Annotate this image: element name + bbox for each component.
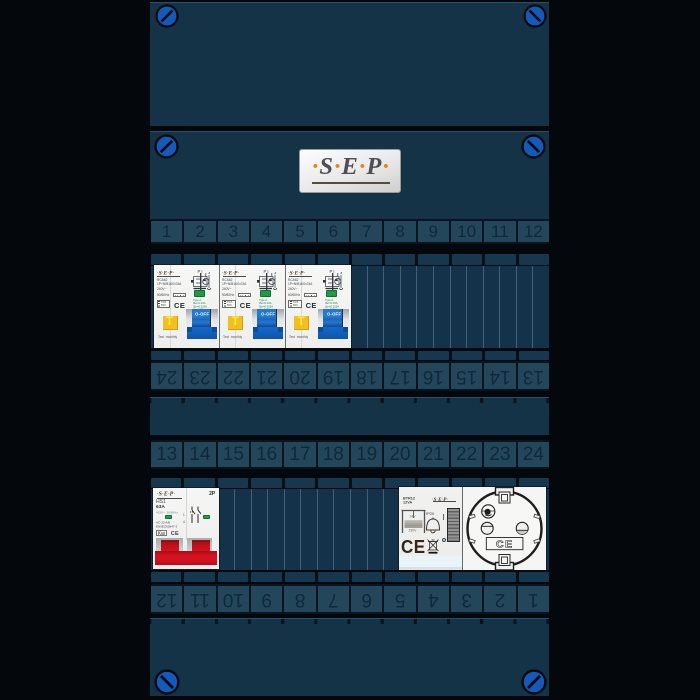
svg-text:P I: P I bbox=[329, 270, 334, 274]
svg-text:IP20: IP20 bbox=[426, 511, 435, 516]
svg-text:24V: 24V bbox=[409, 514, 416, 518]
svg-text:230V: 230V bbox=[408, 528, 417, 532]
svg-text:CE: CE bbox=[496, 538, 514, 550]
svg-text:P I: P I bbox=[198, 270, 203, 274]
svg-text:P I: P I bbox=[263, 270, 268, 274]
